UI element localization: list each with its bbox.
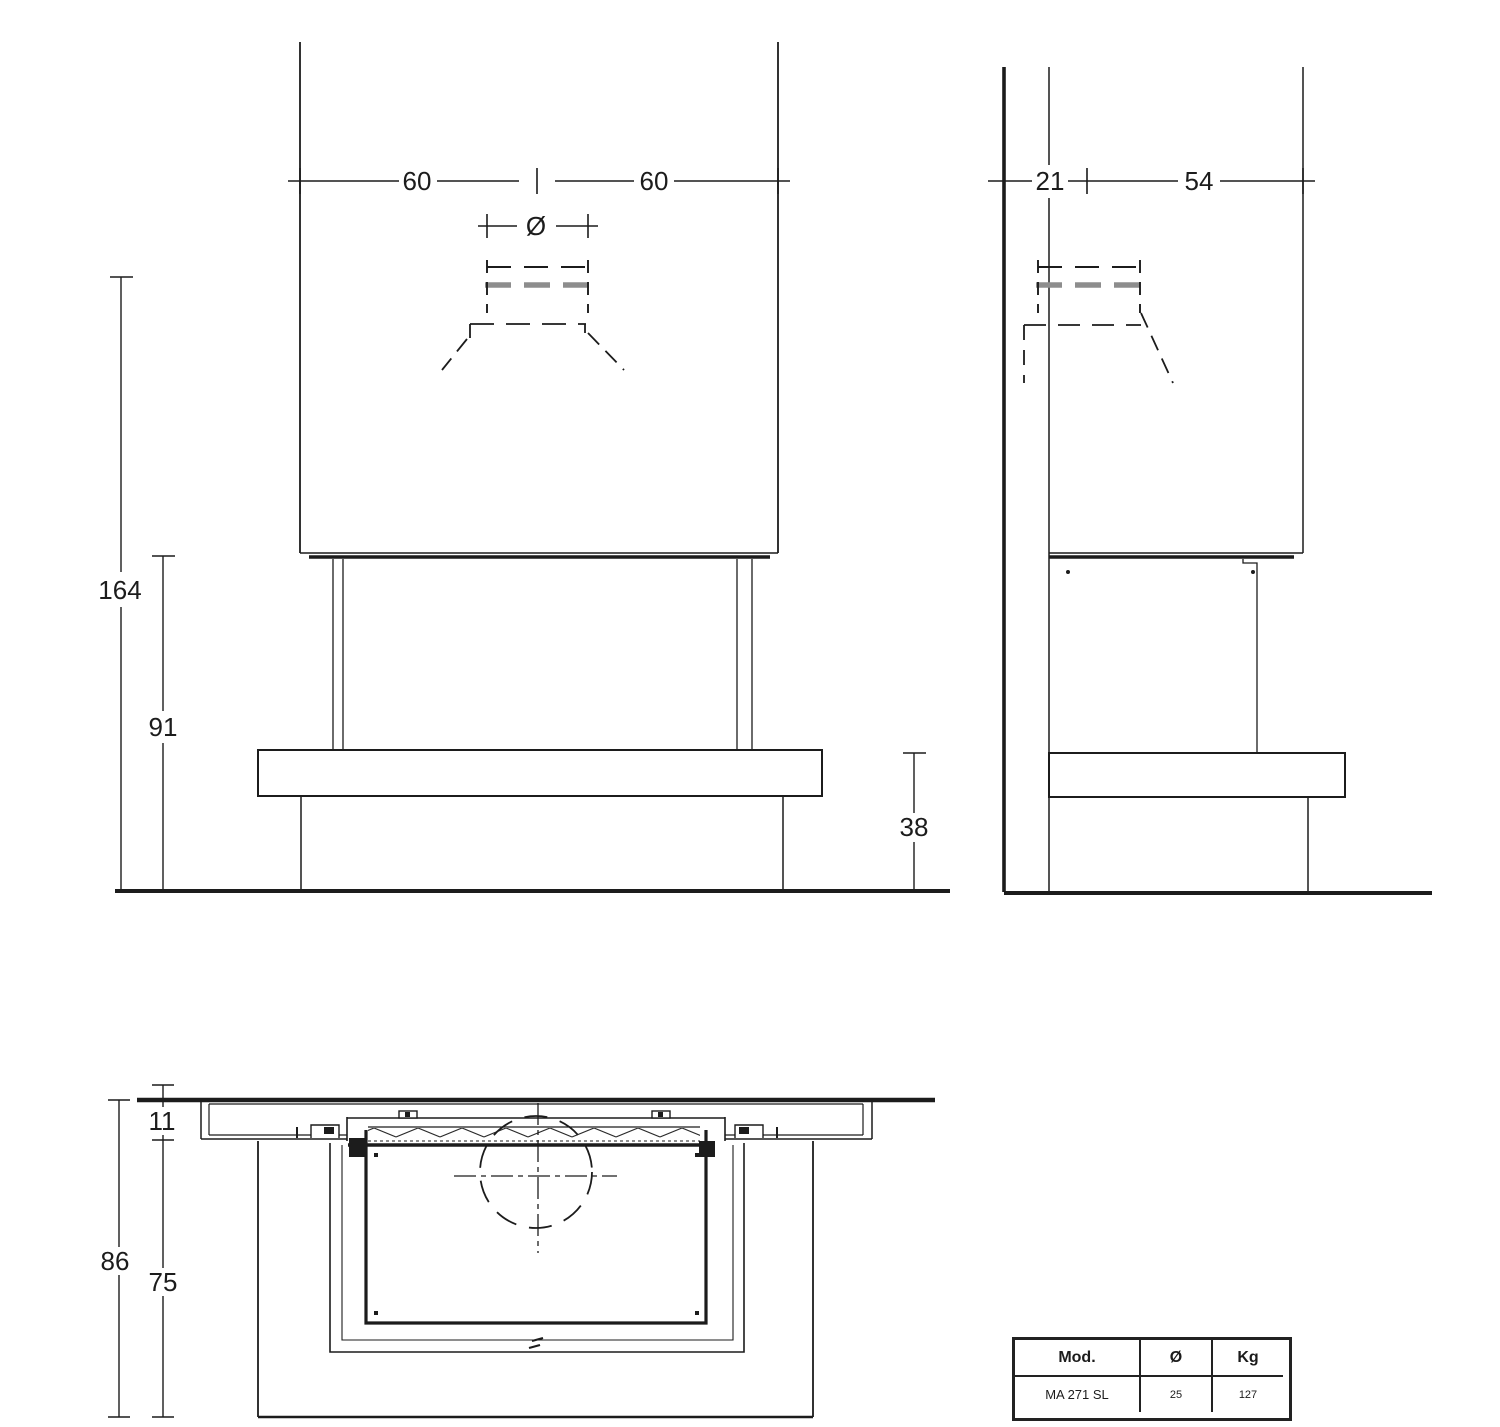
- front-dim-width: 60 60: [288, 166, 790, 196]
- front-left-column: [333, 559, 343, 750]
- plan-firebox-outline: [366, 1130, 706, 1323]
- side-collar-right-flare: [1141, 313, 1173, 383]
- spec-value-kg: 127: [1213, 1377, 1283, 1412]
- plan-dim-75-label: 75: [149, 1267, 178, 1297]
- plan-clip-box-left-dot: [324, 1127, 334, 1134]
- plan-dim-86-label: 86: [101, 1246, 130, 1276]
- plan-view: 11 86 75: [101, 1085, 935, 1417]
- plan-hatched-gasket-band: [368, 1128, 700, 1142]
- plan-firebox-corner-dots: [374, 1153, 699, 1315]
- front-columns: [333, 559, 752, 750]
- plan-outer-casing: [330, 1143, 744, 1352]
- plan-mark-lower: [529, 1345, 540, 1348]
- front-view: 60 60 Ø: [98, 42, 950, 891]
- side-flue-collar-dashed: [1024, 260, 1173, 383]
- front-dim-164-label: 164: [98, 575, 141, 605]
- spec-header-kg: Kg: [1213, 1340, 1283, 1377]
- front-dim-diameter-label: Ø: [526, 211, 546, 241]
- front-base: [301, 796, 783, 891]
- front-dim-width-left-label: 60: [403, 166, 432, 196]
- plan-hinge-left: [349, 1138, 366, 1157]
- plan-dot-br: [695, 1311, 699, 1315]
- plan-dim-recess: 11: [149, 1085, 176, 1141]
- plan-glass-frame: [347, 1111, 725, 1157]
- side-firebox-front-edge: [1243, 559, 1257, 753]
- side-fastener-dot-left: [1066, 570, 1070, 574]
- plan-dot-tr: [695, 1153, 699, 1157]
- plan-top-clip-right-dot: [658, 1112, 663, 1117]
- front-collar-right-flare: [588, 333, 624, 370]
- spec-header-mod: Mod.: [1015, 1340, 1141, 1377]
- front-dim-width-right-label: 60: [640, 166, 669, 196]
- fireplace-dimension-drawing: 60 60 Ø: [0, 0, 1500, 1427]
- plan-clip-box-right-dot: [739, 1127, 749, 1134]
- front-right-column: [737, 559, 752, 750]
- front-bench: [258, 750, 822, 796]
- plan-dot-bl: [374, 1311, 378, 1315]
- plan-dot-tl: [374, 1153, 378, 1157]
- side-view: 21 54: [988, 67, 1432, 893]
- spec-value-diameter: 25: [1141, 1377, 1213, 1412]
- side-dim-54-label: 54: [1185, 166, 1214, 196]
- spec-header-diameter: Ø: [1141, 1340, 1213, 1377]
- front-dim-91-label: 91: [149, 712, 178, 742]
- front-dim-bench-height: 38: [900, 753, 929, 891]
- plan-dim-bench-depth: 75: [149, 1141, 178, 1417]
- front-dim-38-label: 38: [900, 812, 929, 842]
- plan-dim-total-depth: 86: [101, 1100, 130, 1417]
- front-dim-diameter: Ø: [478, 211, 598, 241]
- front-collar-left-flare: [442, 339, 467, 370]
- side-fastener-dot-right: [1251, 570, 1255, 574]
- front-dim-total-height: 164: [98, 277, 141, 891]
- front-collar-corner-hooks: [470, 324, 585, 338]
- plan-dim-11-label: 11: [149, 1106, 176, 1136]
- technical-drawing-page: 60 60 Ø: [0, 0, 1500, 1427]
- spec-table: Mod. Ø Kg MA 271 SL 25 127: [1012, 1337, 1292, 1421]
- side-dim-depth: 21 54: [988, 166, 1315, 196]
- side-dim-21-label: 21: [1036, 166, 1065, 196]
- front-flue-collar-dashed: [442, 260, 624, 370]
- plan-top-clip-left-dot: [405, 1112, 410, 1117]
- side-bench: [1049, 753, 1345, 797]
- plan-base-sides: [258, 1141, 813, 1417]
- spec-value-model: MA 271 SL: [1015, 1377, 1141, 1412]
- front-dim-opening-height: 91: [149, 556, 178, 891]
